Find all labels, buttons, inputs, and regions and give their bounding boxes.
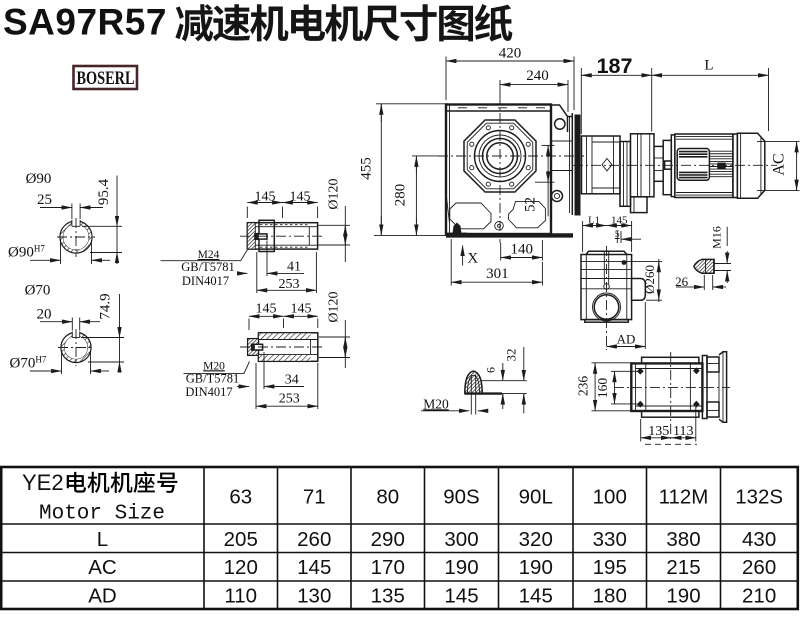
svg-text:AC: AC: [88, 556, 117, 579]
svg-text:32: 32: [504, 349, 519, 362]
svg-text:DIN4017: DIN4017: [185, 385, 232, 399]
svg-text:236: 236: [575, 376, 590, 397]
svg-text:420: 420: [499, 45, 522, 61]
svg-text:130: 130: [297, 585, 331, 608]
svg-text:Ø120: Ø120: [327, 178, 342, 209]
svg-text:210: 210: [742, 585, 776, 608]
svg-text:180: 180: [593, 585, 627, 608]
svg-text:135: 135: [371, 585, 405, 608]
svg-text:Ø260: Ø260: [642, 265, 657, 294]
svg-text:320: 320: [519, 528, 553, 551]
svg-text:AC: AC: [771, 153, 788, 175]
svg-text:63: 63: [229, 486, 252, 509]
svg-text:140: 140: [510, 241, 533, 257]
svg-text:145: 145: [291, 302, 312, 317]
svg-text:41: 41: [287, 260, 301, 275]
svg-text:L: L: [704, 58, 713, 74]
svg-text:74.9: 74.9: [98, 293, 114, 319]
svg-text:430: 430: [742, 528, 776, 551]
svg-text:Ø120: Ø120: [327, 291, 342, 322]
svg-text:195: 195: [593, 556, 627, 579]
svg-text:DIN4017: DIN4017: [182, 274, 229, 288]
svg-text:190: 190: [666, 585, 700, 608]
svg-text:6: 6: [484, 367, 498, 373]
svg-text:253: 253: [279, 392, 300, 407]
svg-text:290: 290: [371, 528, 405, 551]
svg-text:90S: 90S: [443, 486, 479, 509]
svg-text:GB/T5781: GB/T5781: [181, 260, 234, 274]
svg-text:205: 205: [224, 528, 258, 551]
svg-text:M20: M20: [203, 360, 225, 372]
svg-text:112M: 112M: [659, 486, 709, 509]
svg-text:90L: 90L: [519, 486, 553, 509]
svg-text:135: 135: [648, 424, 669, 439]
svg-text:20: 20: [37, 307, 52, 323]
svg-text:215: 215: [666, 556, 700, 579]
svg-text:110: 110: [224, 585, 257, 608]
svg-text:M20: M20: [423, 396, 449, 411]
svg-text:80: 80: [376, 486, 399, 509]
svg-text:455: 455: [359, 157, 375, 180]
svg-text:Ø70: Ø70: [25, 283, 51, 299]
svg-text:145: 145: [444, 585, 478, 608]
svg-text:132S: 132S: [735, 486, 783, 509]
svg-text:280: 280: [393, 184, 409, 207]
svg-text:260: 260: [742, 556, 776, 579]
svg-text:120: 120: [224, 556, 258, 579]
svg-text:145: 145: [519, 585, 553, 608]
svg-text:71: 71: [303, 486, 326, 509]
svg-text:52: 52: [523, 197, 539, 212]
svg-text:260: 260: [297, 528, 331, 551]
svg-text:190: 190: [444, 556, 478, 579]
svg-text:AD: AD: [88, 585, 116, 608]
svg-text:BOSERL: BOSERL: [77, 68, 135, 89]
svg-text:AD: AD: [617, 332, 636, 347]
svg-text:SA97R57: SA97R57: [3, 2, 167, 43]
svg-text:Motor Size: Motor Size: [39, 503, 165, 526]
svg-text:380: 380: [666, 528, 700, 551]
svg-text:L: L: [97, 528, 108, 551]
svg-text:170: 170: [371, 556, 405, 579]
svg-text:25: 25: [37, 192, 52, 208]
svg-text:145: 145: [297, 556, 331, 579]
svg-text:187: 187: [597, 54, 633, 78]
svg-text:YE2: YE2: [22, 470, 64, 495]
svg-text:300: 300: [444, 528, 478, 551]
svg-text:L1: L1: [588, 216, 600, 227]
svg-text:160: 160: [595, 378, 610, 399]
svg-text:113: 113: [673, 424, 693, 439]
svg-text:Ø90: Ø90: [26, 171, 52, 187]
svg-text:M16: M16: [710, 226, 724, 249]
svg-text:240: 240: [526, 68, 549, 84]
svg-text:190: 190: [519, 556, 553, 579]
svg-text:330: 330: [593, 528, 627, 551]
svg-text:145: 145: [256, 302, 277, 317]
svg-text:100: 100: [593, 486, 627, 509]
svg-text:145: 145: [611, 215, 628, 227]
svg-text:X: X: [467, 251, 478, 267]
svg-text:GB/T5781: GB/T5781: [186, 372, 239, 386]
svg-text:34: 34: [285, 373, 299, 388]
svg-text:253: 253: [279, 277, 300, 292]
svg-text:95.4: 95.4: [96, 178, 112, 205]
svg-text:301: 301: [486, 266, 509, 282]
